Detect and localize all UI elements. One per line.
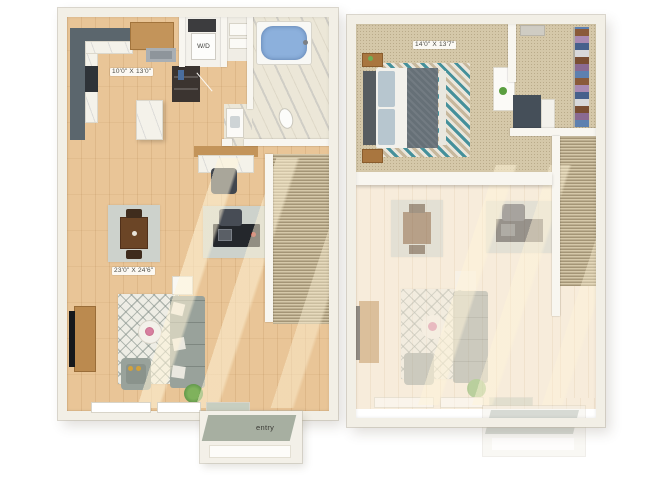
hall-closet	[172, 66, 200, 102]
dining-chair-top	[126, 209, 142, 218]
washer-dryer-unit	[188, 19, 216, 32]
tv-console	[74, 306, 96, 372]
faded-entry-mat	[485, 410, 579, 434]
hall-closet-shelf-2	[174, 88, 198, 90]
desk-mug	[251, 232, 256, 237]
shelf-plant	[499, 87, 507, 95]
coffee-table-flowers	[145, 327, 154, 336]
bedroom-closet-divider-wall	[508, 24, 516, 82]
faded-tv	[355, 306, 360, 360]
faded-flowers	[428, 322, 437, 331]
bathtub	[261, 26, 307, 60]
nightstand-plant	[368, 56, 373, 61]
vanity-sink	[230, 116, 240, 128]
faded-desk-chair	[502, 204, 525, 221]
stairs-left-wall	[265, 154, 273, 322]
dining-chair-bottom	[126, 250, 142, 259]
entry-step	[209, 445, 291, 458]
faded-laptop	[501, 224, 515, 236]
faded-window-2	[440, 397, 484, 408]
window-1	[91, 402, 151, 413]
living-dimension-label: 23'0" X 24'6"	[112, 267, 155, 275]
laptop	[218, 229, 232, 241]
bedroom-dimension-label: 14'0" X 13'7"	[413, 41, 456, 49]
bed-pillow-bottom	[378, 109, 395, 145]
entry-porch: entry	[200, 411, 302, 463]
armchair-pillow-1	[128, 366, 133, 371]
armchair-pillow-2	[136, 366, 141, 371]
end-table	[172, 276, 193, 295]
faded-dining-chair-bottom	[409, 245, 425, 254]
kitchen-island	[136, 100, 163, 140]
entry-label: entry	[256, 423, 274, 432]
floor1-plan: 10'0" X 13'0" W/D	[58, 8, 338, 420]
washer-dryer-label-box: W/D	[191, 33, 216, 60]
faded-end-table	[455, 271, 476, 290]
faded-entry-step	[492, 438, 574, 450]
wall-left-of-wd	[179, 17, 185, 67]
faded-armchair	[404, 353, 434, 385]
faded-plant	[467, 379, 486, 398]
sofa-pillow-2	[172, 337, 186, 351]
faded-dining-chair-top	[409, 204, 425, 213]
closet-bottom-wall	[510, 128, 596, 136]
dining-centerpiece	[132, 231, 137, 236]
entry-mat	[202, 415, 296, 441]
window-2	[157, 402, 201, 413]
desk-nook-chair	[211, 168, 237, 194]
loft-half-wall	[356, 172, 552, 185]
floor2-plan: 14'0" X 13'7"	[347, 15, 605, 427]
bathroom-bottom-wall-right	[244, 139, 329, 146]
faded-entry-porch	[483, 406, 585, 456]
hall-closet-item	[178, 70, 184, 80]
floorplan-image: 10'0" X 13'0" W/D	[0, 0, 670, 480]
stairs-down	[560, 136, 596, 286]
bathtub-faucet	[303, 40, 308, 45]
stairwell-wall	[552, 136, 560, 316]
tv	[69, 311, 75, 367]
bathroom-left-wall	[247, 17, 253, 109]
faded-dining-table	[403, 212, 431, 244]
stairs-up	[273, 154, 329, 324]
kitchen-dark-wall-vertical	[70, 28, 85, 140]
plant	[184, 384, 203, 403]
faded-window-1	[374, 397, 434, 408]
kitchen-cabinets	[130, 22, 174, 50]
kitchen-counter-top	[85, 41, 133, 54]
kitchen-sink	[150, 51, 172, 59]
kitchen-dark-wall-top	[70, 28, 132, 41]
stove	[85, 66, 98, 92]
faded-tv-console	[359, 301, 379, 363]
bed-pillow-top	[378, 71, 395, 107]
desk-chair	[219, 209, 242, 226]
bathroom-bottom-wall-left	[222, 139, 232, 146]
sofa-pillow-3	[171, 365, 186, 379]
faded-sofa	[453, 291, 488, 383]
wall-right-of-wd	[221, 17, 227, 67]
kitchen-dimension-label: 10'0" X 13'0"	[110, 68, 153, 76]
bed-blanket	[407, 68, 438, 148]
